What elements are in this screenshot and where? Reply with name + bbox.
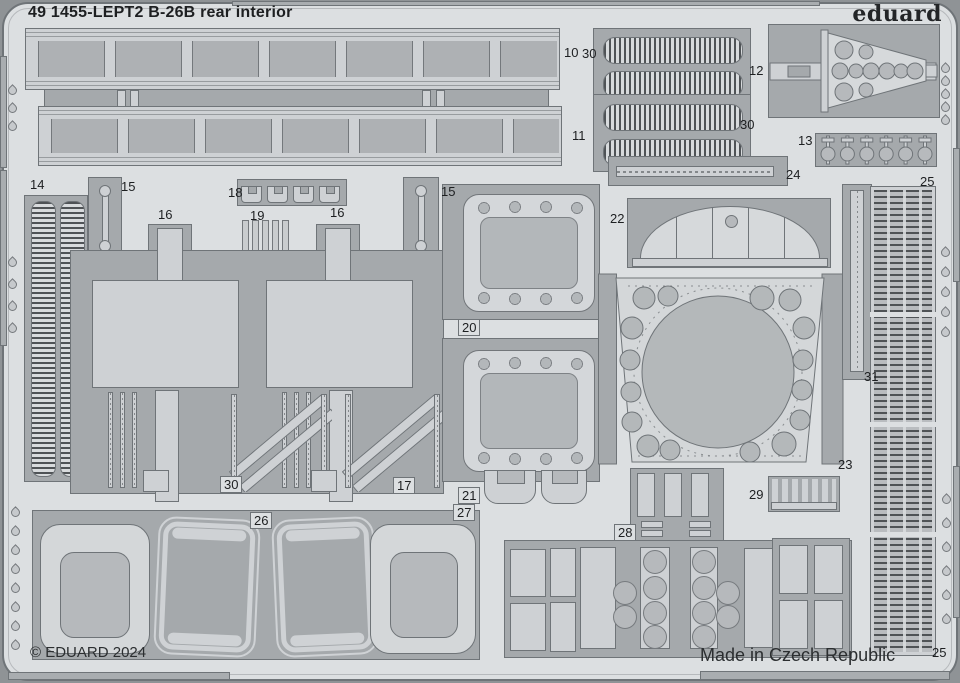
sheet-title: 49 1455-LEPT2 B-26B rear interior (28, 4, 293, 22)
part-number-label: 25 (920, 174, 934, 189)
part-number-label: 20 (458, 319, 480, 336)
part-number-label: 18 (228, 185, 242, 200)
brand-logo: eduard (852, 1, 942, 27)
part-number-label: 31 (864, 369, 878, 384)
copyright-text: © EDUARD 2024 (30, 644, 146, 661)
part-number-label: 16 (158, 207, 172, 222)
part-number-label: 17 (393, 477, 415, 494)
part-number-label: 11 (572, 128, 586, 143)
part-number-label: 16 (330, 205, 344, 220)
part-number-label: 30 (740, 117, 754, 132)
part-number-label: 28 (614, 524, 636, 541)
part-labels-layer: 1030123011132524141515181619162220313017… (0, 0, 960, 683)
part-number-label: 30 (220, 476, 242, 493)
part-number-label: 24 (786, 167, 800, 182)
part-number-label: 25 (932, 645, 946, 660)
part-number-label: 22 (610, 211, 624, 226)
part-number-label: 13 (798, 133, 812, 148)
pe-fret-photo: 1030123011132524141515181619162220313017… (0, 0, 960, 683)
part-number-label: 15 (121, 179, 135, 194)
part-number-label: 10 (564, 45, 578, 60)
part-number-label: 21 (458, 487, 480, 504)
part-number-label: 30 (582, 46, 596, 61)
part-number-label: 29 (749, 487, 763, 502)
part-number-label: 19 (250, 208, 264, 223)
made-in-text: Made in Czech Republic (700, 645, 895, 666)
part-number-label: 12 (749, 63, 763, 78)
part-number-label: 23 (838, 457, 852, 472)
part-number-label: 27 (453, 504, 475, 521)
part-number-label: 26 (250, 512, 272, 529)
part-number-label: 15 (441, 184, 455, 199)
part-number-label: 14 (30, 177, 44, 192)
